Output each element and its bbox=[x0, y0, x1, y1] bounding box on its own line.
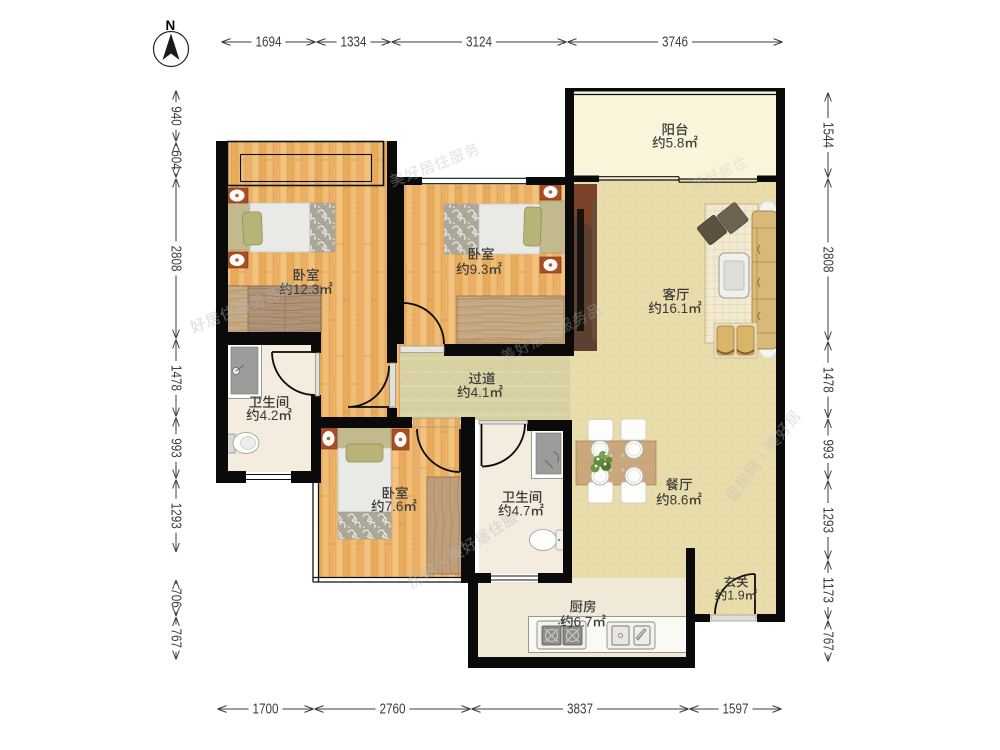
svg-text:1700: 1700 bbox=[253, 702, 279, 718]
svg-text:9.3: 9.3 bbox=[470, 262, 489, 277]
svg-text:767: 767 bbox=[819, 631, 835, 651]
svg-text:3837: 3837 bbox=[567, 702, 593, 718]
svg-text:12.3: 12.3 bbox=[293, 282, 319, 297]
svg-text:5.8: 5.8 bbox=[666, 135, 685, 150]
svg-text:2808: 2808 bbox=[819, 247, 835, 273]
svg-text:1478: 1478 bbox=[167, 365, 183, 391]
svg-text:3746: 3746 bbox=[662, 35, 688, 51]
svg-text:2808: 2808 bbox=[167, 246, 183, 272]
svg-text:N: N bbox=[166, 18, 176, 33]
svg-text:6.7: 6.7 bbox=[574, 614, 593, 629]
svg-text:767: 767 bbox=[167, 629, 183, 649]
svg-text:3124: 3124 bbox=[466, 35, 492, 51]
svg-text:604: 604 bbox=[167, 150, 183, 170]
svg-text:706: 706 bbox=[167, 588, 183, 608]
svg-text:1544: 1544 bbox=[819, 122, 835, 148]
svg-text:940: 940 bbox=[167, 106, 183, 126]
svg-text:1.9: 1.9 bbox=[727, 589, 744, 603]
svg-text:993: 993 bbox=[167, 438, 183, 458]
svg-text:1478: 1478 bbox=[819, 367, 835, 393]
svg-text:8.6: 8.6 bbox=[670, 492, 689, 507]
svg-text:4.2: 4.2 bbox=[260, 408, 279, 423]
svg-text:2760: 2760 bbox=[380, 702, 406, 718]
svg-text:16.1: 16.1 bbox=[662, 301, 688, 316]
svg-text:1597: 1597 bbox=[723, 702, 749, 718]
svg-text:1293: 1293 bbox=[819, 507, 835, 533]
svg-text:4.1: 4.1 bbox=[471, 385, 490, 400]
svg-text:7.6: 7.6 bbox=[385, 499, 404, 514]
svg-text:1173: 1173 bbox=[819, 577, 835, 603]
svg-text:993: 993 bbox=[819, 440, 835, 460]
svg-text:1694: 1694 bbox=[256, 35, 282, 51]
svg-text:1293: 1293 bbox=[167, 503, 183, 529]
svg-text:1334: 1334 bbox=[341, 35, 367, 51]
